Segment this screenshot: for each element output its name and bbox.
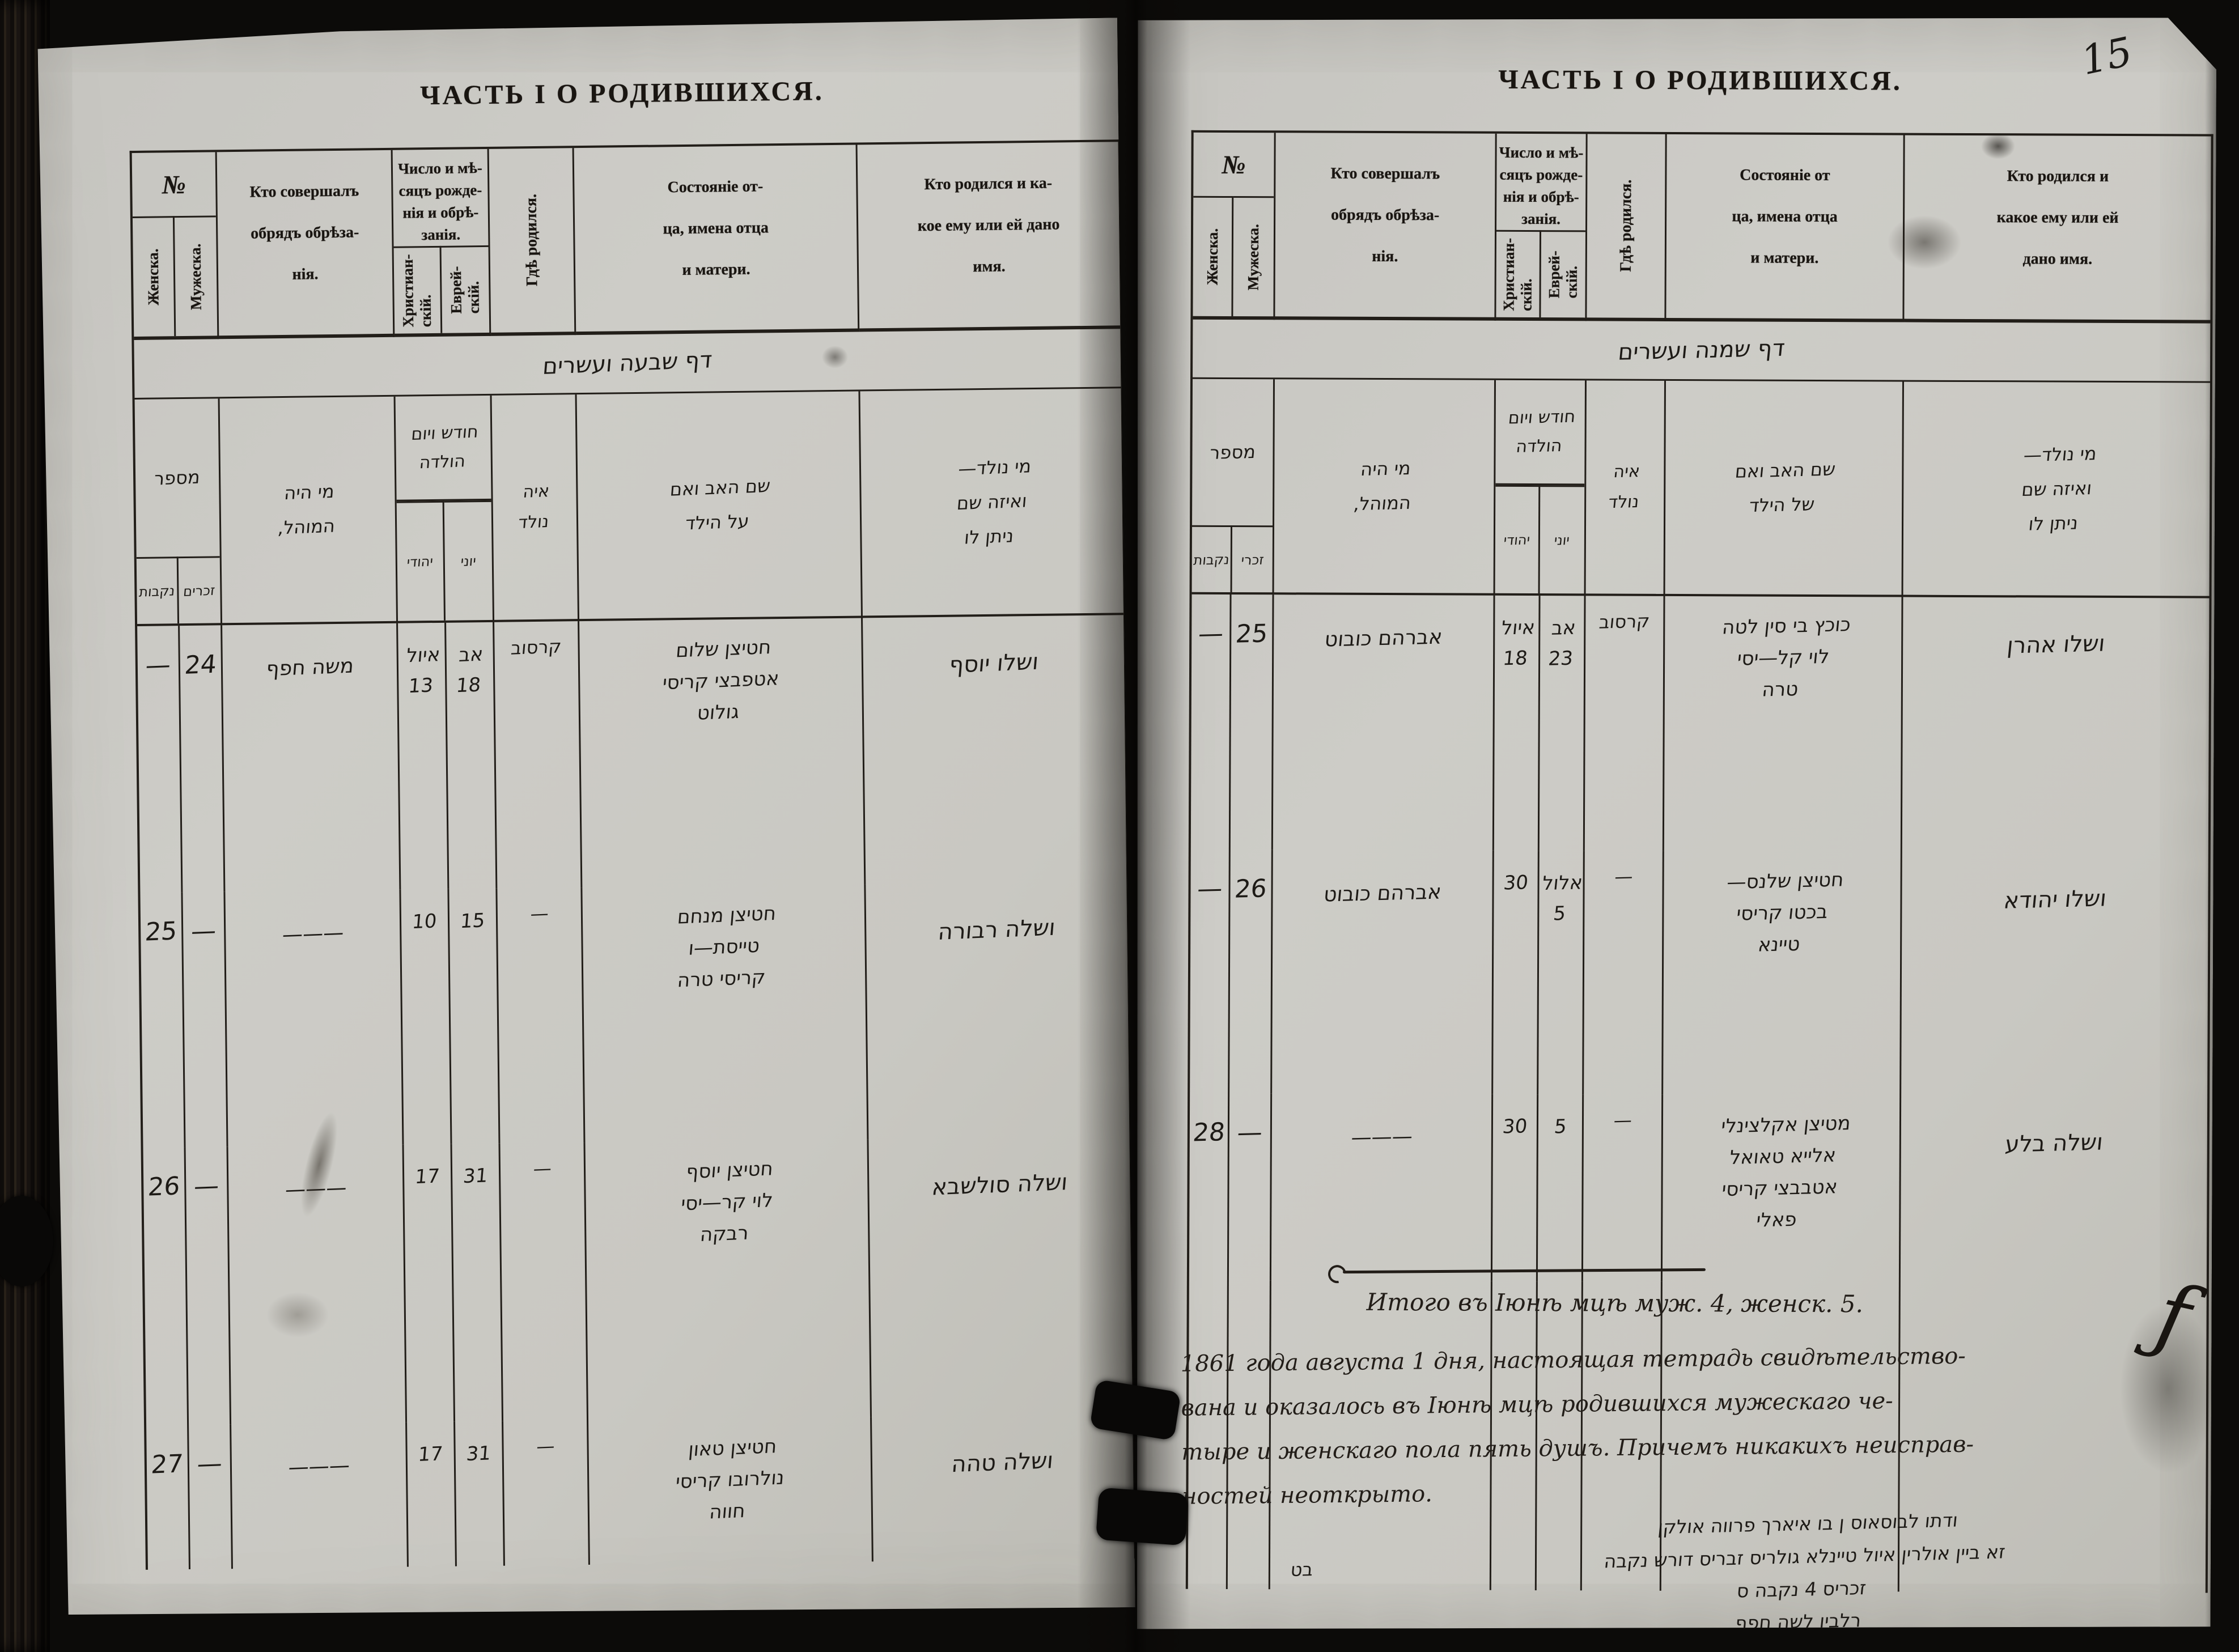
header-number-label: № (132, 152, 216, 216)
hebrew-banner: דף שמנה ועשרים (1193, 320, 2210, 383)
row-mohel: אברהם כובוט (1272, 850, 1494, 1094)
row-mohel: ——— (231, 1422, 409, 1569)
hebrew-header-date: חודש ויום הולדה יהודי יוני (396, 396, 495, 623)
row-born-place: — (1584, 851, 1664, 1095)
row-mohel: אברהם כובוט (1273, 594, 1495, 850)
row-mohel: משה חפף (222, 623, 401, 891)
row-parents: חטיצן יוסף לוי קר—יסי רבקה (585, 1139, 872, 1420)
itogo-flourish (1343, 1268, 1706, 1273)
row-jewish-date: אלול 5 (1538, 851, 1585, 1094)
row-parents: מטיצן אקלצינלי אלייא טאואל אטבבצי קריסי … (1663, 1095, 1901, 1283)
binder-clip (1096, 1488, 1189, 1546)
row-child-name: ושלה רבורה (866, 881, 1129, 1139)
hebrew-side-note: בט (1290, 1558, 1314, 1581)
row-christian-date: 17 (404, 1144, 456, 1422)
row-born-place: קרסוב (494, 621, 582, 889)
row-born-place: — (503, 1420, 590, 1566)
left-page: ЧАСТЬ I О РОДИВШИХСЯ. № Женска. Мужеска.… (37, 18, 1135, 1619)
header-child-label: Кто родился и какое ему или ей дано имя. (1904, 135, 2211, 324)
header-born-label: Гдѣ родился. (1587, 134, 1666, 321)
row-parents: חטיצן טאון נולרובו קריסי חווה (588, 1417, 873, 1565)
hebrew-header-parents: שם האב ואם של הילד (1665, 381, 1904, 597)
header-jewish-label: Еврей- скій. (441, 245, 489, 333)
header-parents-label: Состояніе от ца, имена отца и матери. (1666, 134, 1905, 322)
row-female-number: — (1190, 850, 1231, 1093)
row-born-place: — (1583, 1094, 1663, 1282)
header-christian-label: Христиан- скій. (1496, 230, 1541, 317)
row-born-place: — (497, 887, 585, 1144)
row-born-place: קרסוב (1585, 596, 1665, 851)
attestation-text: 1861 года августа 1 дня, настоящая тетра… (1180, 1332, 2162, 1518)
hebrew-header-child: מי נולד— ואיזה שם ניתן לו (1903, 382, 2210, 598)
row-born-place: — (500, 1143, 588, 1421)
row-jewish-date: 5 (1538, 1094, 1584, 1281)
hebrew-header-born: איה נולד (492, 394, 580, 622)
header-date-label: Число и мѣ- сяцъ рожде- нія и обрѣ- зані… (393, 149, 489, 247)
row-jewish-date: 15 (449, 889, 500, 1144)
row-female-number: 26 (143, 1147, 189, 1425)
right-edge-shadow (2205, 0, 2239, 1652)
hebrew-header-date: חודש ויום הולדה יהודי יוני (1495, 380, 1587, 596)
row-child-name: ושלו אהרן (1902, 597, 2210, 853)
header-mohel-label: Кто совершалъ обрядъ обрѣза- нія. (217, 150, 395, 339)
right-page: ЧАСТЬ I О РОДИВШИХСЯ. № Женска. Мужеска.… (1132, 14, 2217, 1633)
row-male-number: — (186, 1146, 232, 1425)
row-christian-date: 17 (407, 1422, 457, 1567)
header-mohel-label: Кто совершалъ обрядъ обрѣза- нія. (1275, 133, 1496, 320)
hebrew-header-sub-christian: יהודי (1495, 485, 1540, 593)
row-child-name: ושלה בלע (1901, 1096, 2207, 1284)
header-male-label: Мужеска. (174, 215, 217, 336)
row-jewish-date: 31 (452, 1144, 503, 1422)
row-female-number: 25 (140, 892, 185, 1148)
row-male-number: — (189, 1424, 233, 1569)
header-number-label: № (1193, 133, 1274, 197)
row-jewish-date: 31 (455, 1421, 505, 1566)
hebrew-header-mohel: מי היה המוהל, (1274, 379, 1496, 595)
row-mohel: ——— (228, 1145, 408, 1424)
row-female-number: — (137, 626, 183, 893)
row-jewish-date: אב 23 (1540, 596, 1586, 851)
header-born-label: Гдѣ родился. (489, 148, 576, 336)
hebrew-banner: דף שבעה ועשרים (134, 329, 1121, 400)
hebrew-header-males: זכרים (178, 556, 220, 623)
row-child-name: ושלה טהה (872, 1414, 1134, 1561)
header-female-label: Женска. (1193, 196, 1233, 316)
hebrew-header-parents: שם האב ואם על הילד (577, 391, 863, 621)
left-register-table: № Женска. Мужеска. Кто совершалъ обрядъ … (130, 139, 1137, 1570)
left-page-title: ЧАСТЬ I О РОДИВШИХСЯ. (129, 72, 1116, 114)
row-christian-date: 30 (1493, 851, 1540, 1094)
row-male-number: — (183, 891, 228, 1147)
row-christian-date: 30 (1492, 1094, 1538, 1281)
header-number-group: № Женска. Мужеска. (132, 152, 219, 340)
hebrew-header-females: נקבות (1192, 525, 1232, 592)
header-christian-label: Христиан- скій. (394, 246, 442, 334)
hebrew-header-sub-christian: יהודי (397, 501, 446, 621)
hebrew-header-females: נקבות (137, 557, 179, 624)
monthly-summary: Итого въ Іюнѣ мцѣ муж. 4, женск. 5. 1861… (1172, 1258, 2175, 1619)
hebrew-header-sub-jewish: יוני (444, 500, 493, 621)
row-female-number: 28 (1189, 1093, 1229, 1280)
itogo-line: Итого въ Іюнѣ мцѣ муж. 4, женск. 5. (1246, 1288, 1983, 1318)
header-child-label: Кто родился и ка- кое ему или ей дано им… (858, 142, 1121, 332)
header-female-label: Женска. (133, 216, 176, 337)
row-child-name: ושלו יוסף (863, 615, 1126, 884)
row-parents: חטיצן שלום אטפבצי קריסי גולוט (579, 618, 866, 887)
header-male-label: Мужеска. (1233, 196, 1274, 316)
row-child-name: ושלו יהודא (1901, 852, 2208, 1097)
row-parents: חטיצן שלנס— בכטו קריסי טיינא (1663, 851, 1902, 1096)
row-male-number: 26 (1229, 850, 1273, 1093)
hebrew-summary: ודתו לבוסאוס ן בו איארך פרווה אולקן זא ב… (1444, 1499, 2162, 1647)
header-date-label: Число и мѣ- сяцъ рожде- нія и обрѣ- зані… (1496, 134, 1586, 231)
hebrew-header-number: מספר נקבות זכרי (1192, 379, 1275, 595)
hebrew-header-child: מי נולד— ואיזה שם ניתן לו (860, 388, 1123, 618)
row-male-number: 24 (180, 625, 225, 892)
right-page-title: ЧАСТЬ I О РОДИВШИХСЯ. (1191, 63, 2209, 98)
row-child-name: ושלה סולשבא (868, 1136, 1133, 1417)
header-date-group: Число и мѣ- сяцъ рожде- нія и обрѣ- зані… (393, 149, 491, 337)
row-mohel: ——— (1271, 1093, 1493, 1281)
row-jewish-date: אב 18 (446, 622, 497, 889)
hebrew-header-mohel: מי היה המוהל, (220, 397, 398, 625)
row-christian-date: איול 13 (398, 623, 449, 890)
hebrew-header-number: מספר נקבות זכרים (135, 398, 223, 626)
header-number-group: № Женска. Мужеска. (1193, 133, 1275, 320)
header-date-group: Число и мѣ- сяцъ рожде- нія и обрѣ- зані… (1496, 134, 1587, 321)
row-female-number: — (1191, 594, 1232, 850)
header-jewish-label: Еврей- скій. (1541, 230, 1585, 317)
row-christian-date: 10 (401, 889, 452, 1145)
row-parents: חטיצן מנחם טייסת—ו קריסי טרה (582, 884, 868, 1143)
hebrew-header-males: זכרי (1232, 525, 1273, 592)
row-male-number: — (1229, 1093, 1272, 1280)
row-mohel: ——— (225, 890, 404, 1146)
hebrew-header-born: איה נולד (1586, 380, 1666, 596)
hebrew-header-sub-jewish: יוני (1540, 485, 1584, 593)
row-male-number: 25 (1231, 594, 1274, 850)
header-parents-label: Состояніе от- ца, имена отца и матери. (574, 145, 860, 336)
row-parents: כוכץ בי סין לטה לוי קל—יסי טרה (1664, 596, 1903, 852)
row-christian-date: איול 18 (1494, 596, 1541, 851)
row-female-number: 27 (146, 1425, 190, 1570)
